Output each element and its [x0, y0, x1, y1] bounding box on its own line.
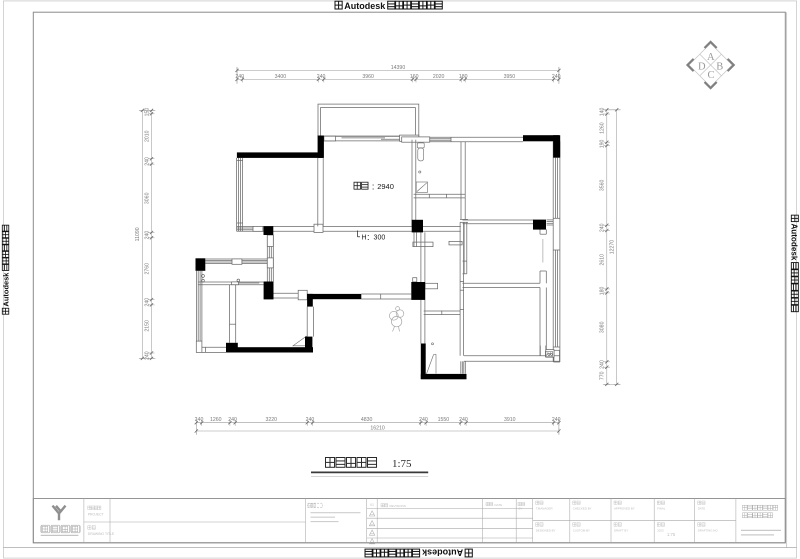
- svg-text:180: 180: [459, 74, 468, 80]
- svg-text:V1: V1: [370, 503, 374, 507]
- svg-text:240: 240: [195, 417, 204, 423]
- svg-text:3910: 3910: [504, 417, 516, 423]
- svg-text:A: A: [707, 52, 715, 63]
- svg-text:3080: 3080: [599, 321, 605, 333]
- svg-text:FINAL: FINAL: [657, 507, 666, 511]
- svg-text:BY: BY: [519, 506, 523, 510]
- svg-text:3560: 3560: [599, 180, 605, 192]
- svg-text:140: 140: [599, 107, 605, 116]
- svg-text:240: 240: [144, 351, 150, 360]
- svg-text:REVISIONS: REVISIONS: [390, 504, 406, 508]
- svg-text:B: B: [716, 61, 723, 72]
- svg-text:240: 240: [306, 417, 315, 423]
- svg-text:240: 240: [144, 298, 150, 307]
- svg-text:14390: 14390: [391, 65, 406, 71]
- svg-text:1260: 1260: [210, 417, 222, 423]
- svg-text:Autodesk: Autodesk: [2, 272, 11, 307]
- svg-text:240: 240: [317, 74, 326, 80]
- svg-text:2610: 2610: [599, 254, 605, 266]
- svg-text:11090: 11090: [135, 227, 141, 241]
- svg-text:DATE: DATE: [698, 507, 706, 511]
- svg-text:240: 240: [552, 417, 561, 423]
- svg-text:16210: 16210: [370, 426, 385, 432]
- svg-text:2150: 2150: [144, 320, 150, 332]
- svg-text:12270: 12270: [610, 240, 616, 255]
- svg-text:240: 240: [144, 157, 150, 166]
- svg-text:240: 240: [599, 223, 605, 232]
- svg-text:T.MANAGER: T.MANAGER: [536, 507, 553, 511]
- svg-text:DESIGNED BY: DESIGNED BY: [536, 528, 556, 532]
- svg-text:Autodesk: Autodesk: [344, 1, 386, 11]
- svg-text:240: 240: [599, 360, 605, 369]
- svg-text:1:75: 1:75: [392, 458, 412, 470]
- svg-text:240: 240: [235, 74, 244, 80]
- svg-text:DRAWING TITLE: DRAWING TITLE: [88, 532, 115, 536]
- svg-text:APPROVED BY: APPROVED BY: [614, 507, 635, 511]
- svg-text:3220: 3220: [266, 417, 278, 423]
- svg-text:3060: 3060: [144, 192, 150, 204]
- svg-text:240: 240: [144, 231, 150, 240]
- svg-text:3400: 3400: [275, 74, 287, 80]
- svg-text:240: 240: [459, 417, 468, 423]
- svg-text:3960: 3960: [362, 74, 374, 80]
- svg-text:4830: 4830: [361, 417, 373, 423]
- svg-text:CHECKED BY: CHECKED BY: [573, 507, 592, 511]
- svg-text:2760: 2760: [144, 263, 150, 275]
- svg-text:2940: 2940: [377, 182, 394, 191]
- svg-text:160: 160: [410, 74, 419, 80]
- svg-text:DATE: DATE: [495, 503, 503, 507]
- svg-text:240: 240: [228, 417, 237, 423]
- svg-text:240: 240: [419, 417, 428, 423]
- svg-text:PROJECT: PROJECT: [88, 512, 104, 516]
- svg-text:1:75: 1:75: [667, 532, 676, 537]
- svg-text:2020: 2020: [433, 74, 445, 80]
- svg-text:Autodesk: Autodesk: [790, 223, 799, 260]
- svg-text:770: 770: [599, 371, 605, 380]
- svg-text:180: 180: [599, 286, 605, 295]
- svg-text:DRAFTING NO.: DRAFTING NO.: [698, 528, 719, 532]
- svg-text:Autodesk: Autodesk: [421, 547, 463, 557]
- svg-text:CUSTOM BY: CUSTOM BY: [573, 528, 590, 532]
- svg-text:H：300: H：300: [362, 234, 386, 241]
- svg-text:1260: 1260: [599, 122, 605, 134]
- svg-text:1550: 1550: [438, 417, 450, 423]
- svg-text:DRAFT BY: DRAFT BY: [614, 528, 628, 532]
- svg-text:190: 190: [599, 139, 605, 148]
- svg-text:150: 150: [144, 108, 150, 117]
- svg-text:2010: 2010: [144, 130, 150, 142]
- svg-text:240: 240: [552, 74, 561, 80]
- svg-text:3950: 3950: [504, 74, 516, 80]
- svg-text:D: D: [698, 61, 706, 72]
- svg-text:2023: 2023: [657, 528, 664, 532]
- svg-text:C: C: [707, 70, 714, 81]
